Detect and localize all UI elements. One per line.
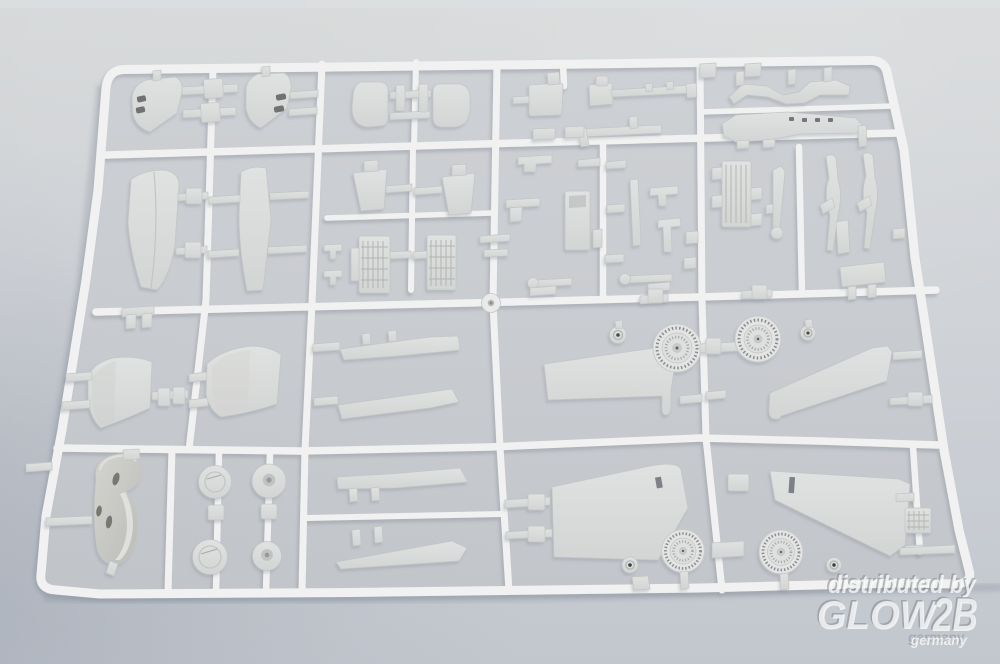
svg-text:germany: germany [910,633,968,648]
